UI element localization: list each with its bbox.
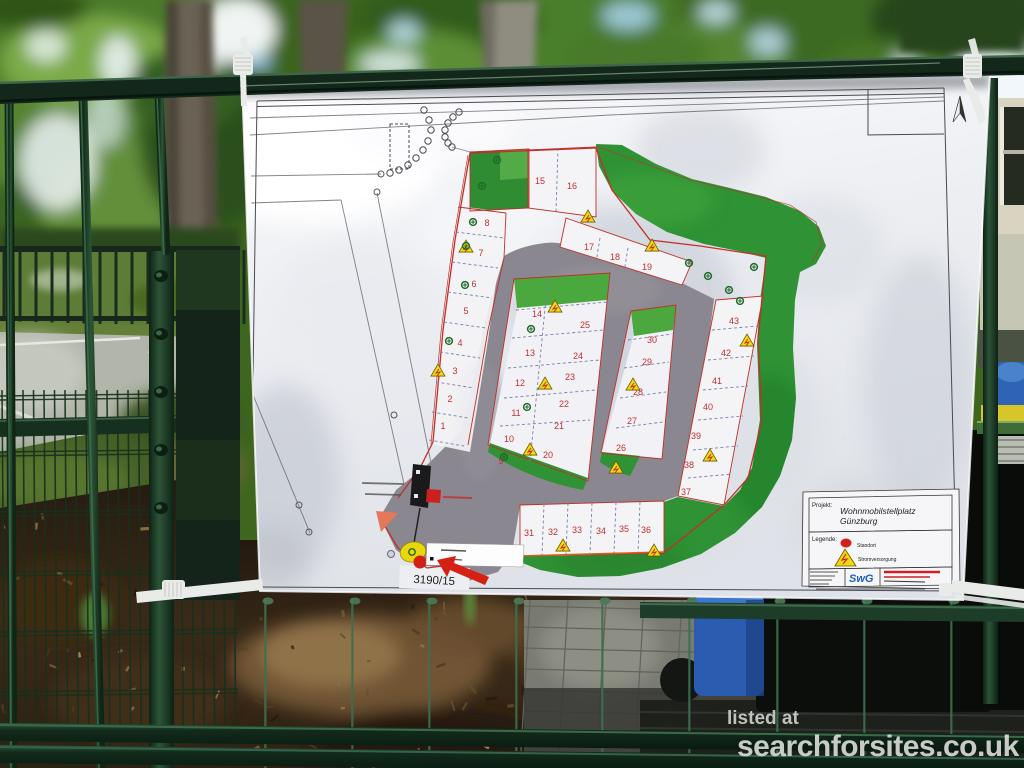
- svg-text:31: 31: [524, 528, 534, 538]
- svg-text:13: 13: [525, 348, 535, 358]
- svg-text:24: 24: [573, 351, 583, 361]
- svg-text:14: 14: [532, 309, 542, 319]
- svg-text:8: 8: [484, 218, 489, 228]
- svg-text:25: 25: [580, 320, 590, 330]
- svg-text:searchforsites.co.uk: searchforsites.co.uk: [737, 730, 1020, 763]
- svg-text:41: 41: [712, 376, 722, 386]
- svg-text:Projekt:: Projekt:: [812, 503, 833, 509]
- svg-text:43: 43: [729, 316, 739, 326]
- svg-text:2: 2: [447, 394, 452, 404]
- svg-text:21: 21: [554, 421, 564, 431]
- svg-text:Legende:: Legende:: [812, 537, 837, 543]
- svg-text:20: 20: [543, 450, 553, 460]
- svg-text:26: 26: [616, 443, 626, 453]
- svg-text:38: 38: [684, 460, 694, 470]
- svg-text:4: 4: [457, 338, 462, 348]
- svg-text:16: 16: [567, 181, 577, 191]
- svg-text:listed at: listed at: [727, 708, 799, 729]
- svg-text:40: 40: [703, 402, 713, 412]
- svg-text:3: 3: [452, 366, 457, 376]
- svg-text:Standort: Standort: [857, 543, 877, 549]
- svg-text:23: 23: [565, 372, 575, 382]
- svg-text:1: 1: [440, 421, 445, 431]
- svg-text:15: 15: [535, 176, 545, 186]
- svg-text:Stromversorgung: Stromversorgung: [858, 557, 897, 563]
- svg-text:39: 39: [691, 431, 701, 441]
- svg-text:12: 12: [515, 378, 525, 388]
- svg-text:Günzburg: Günzburg: [840, 516, 878, 526]
- svg-text:32: 32: [548, 527, 558, 537]
- svg-text:29: 29: [642, 357, 652, 367]
- svg-text:SwG: SwG: [849, 573, 874, 585]
- svg-text:18: 18: [610, 252, 620, 262]
- svg-text:42: 42: [721, 348, 731, 358]
- svg-text:30: 30: [647, 335, 657, 345]
- svg-text:36: 36: [641, 525, 651, 535]
- svg-text:35: 35: [619, 524, 629, 534]
- svg-text:3190/15: 3190/15: [413, 574, 455, 588]
- svg-text:34: 34: [596, 526, 606, 536]
- svg-text:10: 10: [504, 434, 514, 444]
- svg-text:11: 11: [511, 408, 520, 418]
- svg-text:37: 37: [681, 487, 691, 497]
- svg-text:6: 6: [471, 279, 476, 289]
- svg-text:19: 19: [642, 262, 652, 272]
- svg-text:5: 5: [463, 306, 468, 316]
- svg-text:33: 33: [572, 525, 582, 535]
- svg-text:7: 7: [478, 248, 483, 258]
- svg-text:22: 22: [559, 399, 569, 409]
- svg-text:Wohnmobilstellplatz: Wohnmobilstellplatz: [840, 506, 916, 516]
- svg-text:27: 27: [627, 416, 637, 426]
- svg-text:17: 17: [584, 242, 594, 252]
